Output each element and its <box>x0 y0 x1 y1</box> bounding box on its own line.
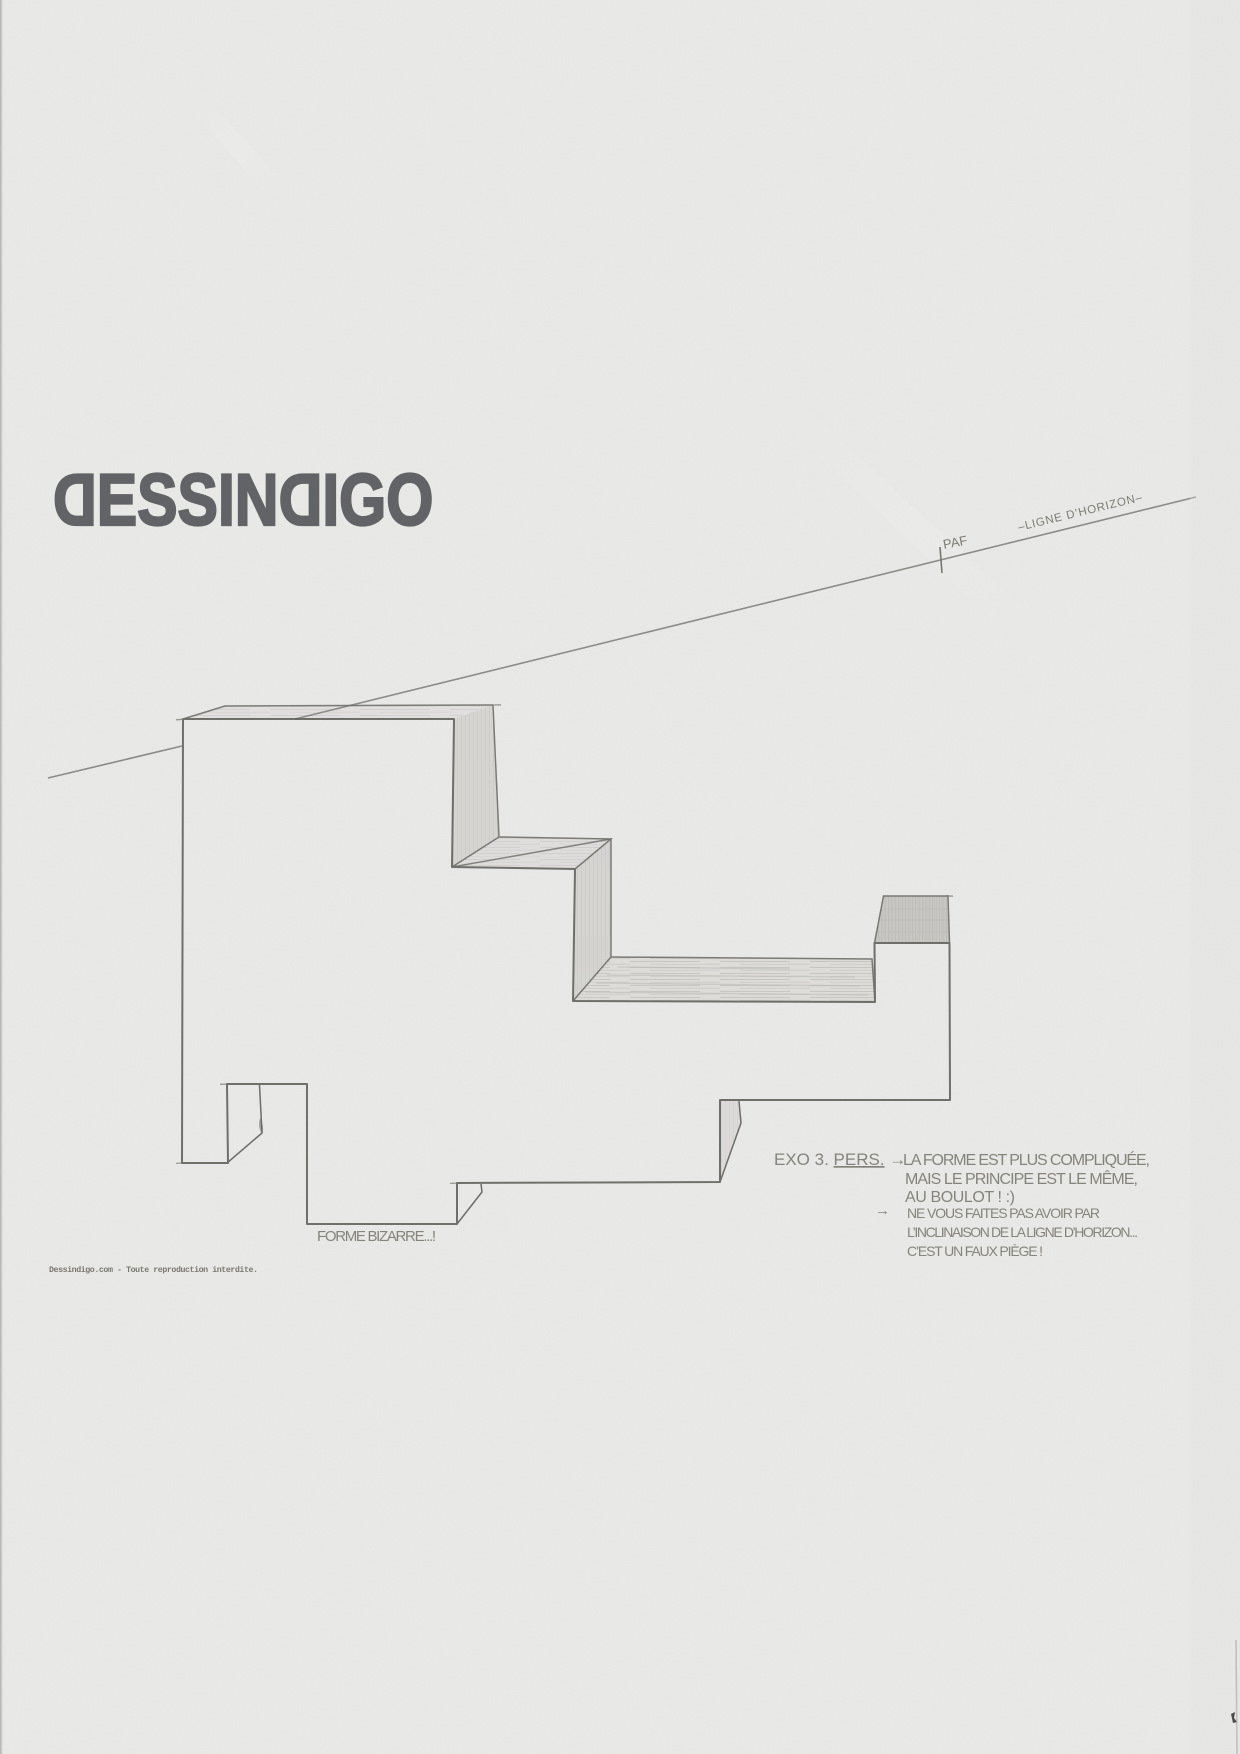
svg-text:D: D <box>279 460 323 542</box>
svg-text:L’INCLINAISON DE LA LIGNE D’HO: L’INCLINAISON DE LA LIGNE D’HORIZON... <box>907 1224 1138 1240</box>
svg-text:NE VOUS FAITES PAS AVOIR PAR: NE VOUS FAITES PAS AVOIR PAR <box>907 1205 1100 1221</box>
svg-text:LA FORME EST PLUS COMPLIQUÉE,: LA FORME EST PLUS COMPLIQUÉE, <box>903 1150 1150 1169</box>
svg-text:FORME BIZARRE...!: FORME BIZARRE...! <box>317 1228 436 1245</box>
svg-text:AU BOULOT ! :): AU BOULOT ! :) <box>905 1189 1015 1206</box>
svg-text:Dessindigo.com - Toute reprodu: Dessindigo.com - Toute reproduction inte… <box>49 1265 258 1275</box>
svg-text:C’EST UN FAUX PIÈGE !: C’EST UN FAUX PIÈGE ! <box>907 1243 1043 1259</box>
svg-text:IGO: IGO <box>322 460 433 542</box>
svg-text:→: → <box>875 1202 890 1219</box>
svg-text:EXO 3. PERS. →: EXO 3. PERS. → <box>774 1150 906 1169</box>
svg-text:MAIS LE PRINCIPE EST LE MÊME,: MAIS LE PRINCIPE EST LE MÊME, <box>905 1169 1138 1188</box>
svg-text:ESSIN: ESSIN <box>97 460 279 542</box>
svg-text:D: D <box>53 460 97 542</box>
